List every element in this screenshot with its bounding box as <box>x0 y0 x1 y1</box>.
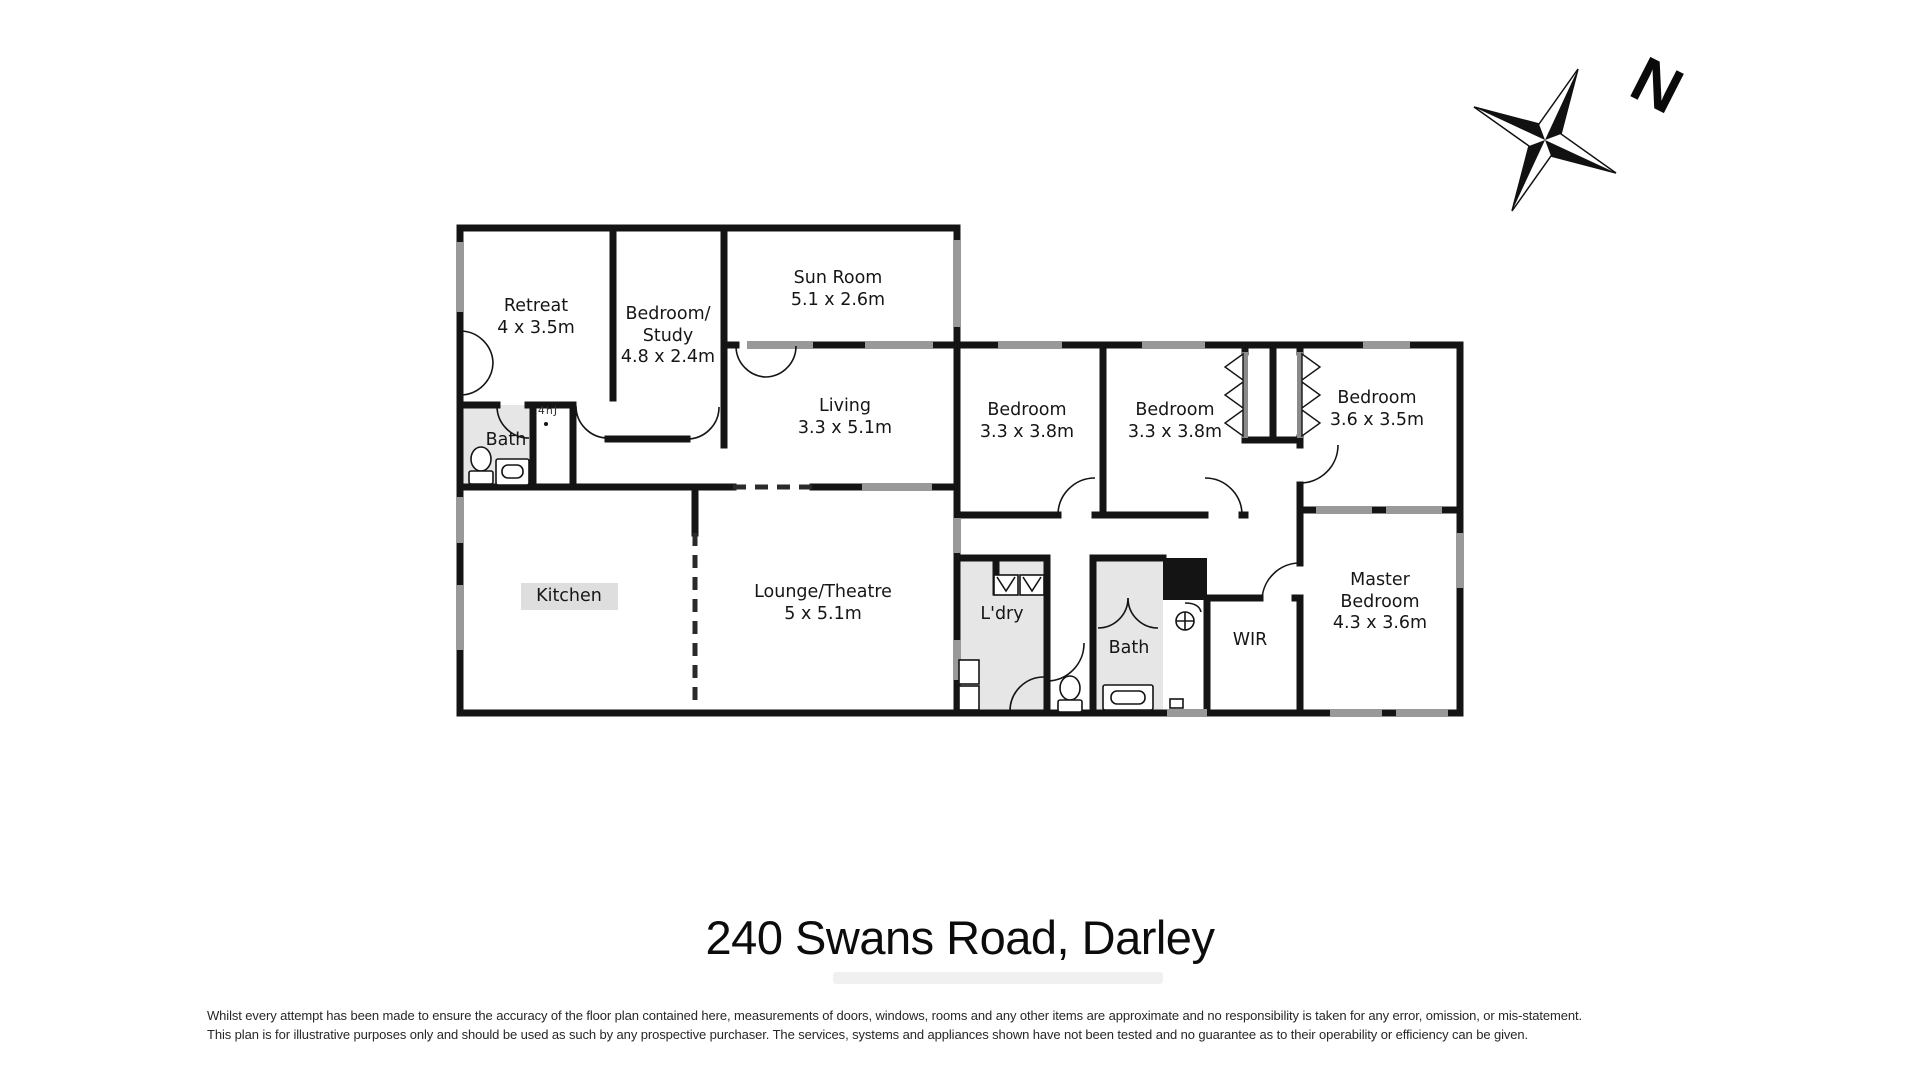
window <box>998 341 1062 349</box>
french-door-arc <box>460 331 493 363</box>
window <box>1363 341 1410 349</box>
window <box>1330 709 1382 717</box>
room-label-kitchen: Kitchen <box>536 586 602 608</box>
window <box>1167 709 1207 717</box>
room-label-bath-upper: Bath <box>486 430 527 452</box>
basin-icon <box>502 465 523 478</box>
window <box>1316 506 1372 514</box>
annotation-dot <box>544 422 548 426</box>
window <box>953 240 961 327</box>
room-label-master-bedroom: MasterBedroom4.3 x 3.6m <box>1333 570 1427 635</box>
window <box>456 497 464 543</box>
double-door-arc <box>736 346 766 377</box>
bifold-door-icon <box>1302 354 1320 380</box>
room-label-living: Living3.3 x 5.1m <box>798 396 892 439</box>
laundry-cabinet-icon <box>959 686 979 710</box>
window <box>1386 506 1442 514</box>
watermark-smudge <box>833 972 1163 984</box>
page-title: 240 Swans Road, Darley <box>0 910 1920 965</box>
door-arc <box>576 406 608 438</box>
room-label-bedroom-1: Bedroom3.3 x 3.8m <box>980 400 1074 443</box>
door-arc <box>1047 643 1084 681</box>
room-label-bedroom-2: Bedroom3.3 x 3.8m <box>1128 400 1222 443</box>
room-label-bath-lower: Bath <box>1109 638 1150 660</box>
bifold-door-icon <box>1225 354 1243 380</box>
window <box>865 341 933 349</box>
window <box>456 585 464 650</box>
floorplan-page: Retreat4 x 3.5m Bedroom/Study4.8 x 2.4m … <box>0 0 1920 1074</box>
disclaimer-line-1: Whilst every attempt has been made to en… <box>207 1006 1582 1025</box>
room-label-wir: WIR <box>1233 630 1268 652</box>
window <box>1396 709 1448 717</box>
door-arc <box>687 407 719 439</box>
chimney-block <box>1163 558 1207 600</box>
room-label-laundry: L'dry <box>980 604 1023 626</box>
door-arc <box>1058 478 1095 515</box>
drain-icon <box>1170 699 1183 708</box>
bifold-door-icon <box>1225 382 1243 408</box>
laundry-cabinet-icon <box>959 660 979 684</box>
window <box>456 242 464 312</box>
toilet-icon <box>1060 676 1080 700</box>
toilet-tank-icon <box>469 471 493 484</box>
bifold-door-icon <box>1302 410 1320 436</box>
double-door-arc <box>766 346 796 377</box>
bifold-door-icon <box>1302 382 1320 408</box>
room-label-lounge-theatre: Lounge/Theatre5 x 5.1m <box>754 582 892 625</box>
basin-icon <box>1111 691 1145 704</box>
room-label-retreat: Retreat4 x 3.5m <box>497 296 575 339</box>
window <box>1142 341 1205 349</box>
disclaimer-text: Whilst every attempt has been made to en… <box>207 1006 1582 1044</box>
annotation-tiny-label: 4hJ <box>538 404 558 417</box>
window <box>1456 533 1464 588</box>
room-label-bedroom-3: Bedroom3.6 x 3.5m <box>1330 388 1424 431</box>
toilet-tank-icon <box>1058 700 1082 712</box>
disclaimer-line-2: This plan is for illustrative purposes o… <box>207 1025 1582 1044</box>
compass-rose-icon <box>1474 69 1616 211</box>
shower-arm-icon <box>1185 603 1201 612</box>
wet-area-fills <box>460 405 1163 713</box>
french-door-arc <box>460 363 493 395</box>
room-label-sun-room: Sun Room5.1 x 2.6m <box>791 268 885 311</box>
door-arc <box>1205 478 1242 515</box>
door-arc <box>1300 445 1338 483</box>
window <box>747 341 813 349</box>
bifold-door-icon <box>1225 410 1243 436</box>
room-label-bedroom-study: Bedroom/Study4.8 x 2.4m <box>621 304 715 369</box>
window <box>862 483 932 491</box>
window <box>953 518 961 553</box>
